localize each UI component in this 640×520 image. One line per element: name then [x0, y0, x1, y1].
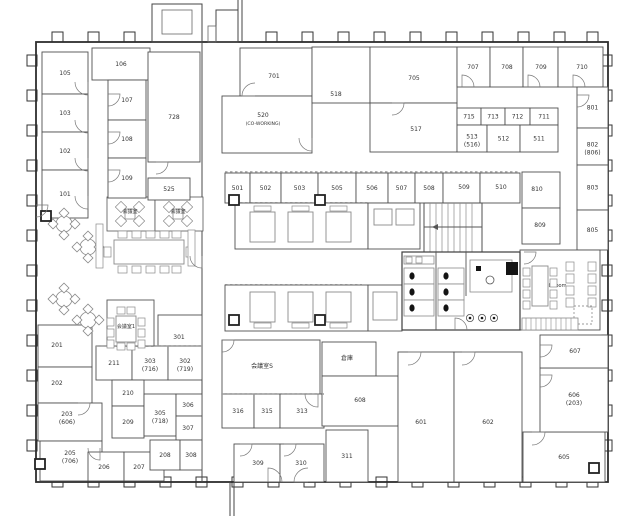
room-label-505: 505: [331, 185, 343, 192]
pillar: [229, 315, 239, 325]
room-506: 506: [356, 173, 388, 203]
room-503: 503: [281, 173, 318, 203]
floor-plan-drawing: 105103102101106107108109728525701520(CO-…: [0, 0, 640, 520]
room-label-517: 517: [410, 126, 422, 133]
room-sublabel-802: (806): [584, 150, 600, 157]
room-label-607: 607: [569, 348, 581, 355]
room-label-520: 520: [257, 112, 269, 119]
room-label-313: 313: [296, 408, 308, 415]
room-label-510: 510: [495, 184, 507, 191]
room-label-502: 502: [260, 185, 272, 192]
room-label-805: 805: [587, 227, 599, 234]
room-会議室S: 会議室S: [222, 340, 320, 394]
room-202: 202: [38, 367, 92, 403]
room-712: 712: [505, 108, 530, 125]
room-label-倉庫: 倉庫: [341, 354, 353, 362]
room-label-512: 512: [498, 136, 510, 143]
room-520: 520(CO-WORKING): [222, 96, 312, 153]
room-108: 108: [108, 120, 146, 158]
room-label-711: 711: [538, 114, 550, 121]
room-303: 303(716): [132, 346, 168, 380]
room-309: 309: [234, 444, 280, 482]
room-206: 206: [88, 452, 124, 481]
room-label-713: 713: [487, 114, 499, 121]
room-507: 507: [388, 173, 415, 203]
room-301: 301: [158, 315, 202, 346]
room-label-201: 201: [51, 342, 63, 349]
room-701: 701: [240, 48, 312, 96]
room-label-705: 705: [408, 75, 420, 82]
room-801: 801: [577, 87, 608, 128]
room-label-103: 103: [59, 110, 71, 117]
room-label-211: 211: [108, 360, 120, 367]
room-label-309: 309: [252, 460, 264, 467]
room-708: 708: [490, 47, 523, 87]
room-502: 502: [250, 173, 281, 203]
room-sublabel-513: (516): [464, 142, 480, 149]
room-label-203: 203: [61, 411, 73, 418]
room-倉庫: 倉庫: [322, 342, 376, 376]
room-label-311: 311: [341, 453, 353, 460]
room-label-108: 108: [121, 136, 133, 143]
room-label-809: 809: [534, 222, 546, 229]
room-sublabel-302: (719): [177, 366, 193, 373]
room-517: 517: [370, 103, 457, 152]
room-label-301: 301: [173, 334, 185, 341]
pillar: [589, 463, 599, 473]
room-label-307: 307: [182, 425, 194, 432]
room-sublabel-205: (706): [62, 458, 78, 465]
room-705: 705: [370, 47, 457, 103]
room-211: 211: [96, 346, 132, 380]
room-602: 602: [454, 352, 522, 482]
room-label-105: 105: [59, 70, 71, 77]
room-label-701: 701: [268, 73, 280, 80]
room-label-508: 508: [423, 185, 435, 192]
room-label-708: 708: [501, 64, 513, 71]
room-sublabel-520: (CO-WORKING): [246, 121, 281, 127]
room-label-310: 310: [295, 460, 307, 467]
room-513: 513(516): [457, 125, 487, 152]
room-label-303: 303: [144, 358, 156, 365]
room-label-715: 715: [463, 114, 475, 121]
room-label-208: 208: [159, 452, 171, 459]
room-label-525: 525: [163, 186, 175, 193]
room-311: 311: [326, 430, 368, 482]
room-label-315: 315: [261, 408, 273, 415]
room-512: 512: [487, 125, 520, 152]
room-label-709: 709: [535, 64, 547, 71]
room-518: 518: [312, 47, 370, 103]
room-label-601: 601: [415, 419, 427, 426]
room-label-210: 210: [122, 390, 134, 397]
room-103: 103: [42, 94, 88, 132]
room-label-305: 305: [154, 410, 166, 417]
room-label-205: 205: [64, 450, 76, 457]
room-203: 203(606): [38, 403, 102, 441]
room-label-810: 810: [531, 186, 543, 193]
room-sublabel-303: (716): [142, 366, 158, 373]
room-label-513: 513: [466, 134, 478, 141]
room-label-302: 302: [179, 358, 191, 365]
room-315: 315: [254, 394, 280, 428]
room-label-109: 109: [121, 175, 133, 182]
room-713: 713: [481, 108, 505, 125]
pillar: [229, 195, 239, 205]
room-label-209: 209: [122, 419, 134, 426]
room-106: 106: [92, 48, 150, 80]
room-label-712: 712: [512, 114, 524, 121]
room-label-802: 802: [587, 142, 599, 149]
room-711: 711: [530, 108, 558, 125]
room-label-506: 506: [366, 185, 378, 192]
room-label-801: 801: [587, 105, 599, 112]
floor-plan-page: 105103102101106107108109728525701520(CO-…: [0, 0, 640, 520]
room-728: 728: [148, 52, 200, 162]
room-605: 605: [523, 432, 605, 482]
room-label-106: 106: [115, 61, 127, 68]
room-label-606: 606: [568, 392, 580, 399]
room-805: 805: [577, 210, 608, 250]
room-label-511: 511: [533, 136, 545, 143]
area-label: 会議室: [122, 208, 137, 215]
room-label-102: 102: [59, 148, 71, 155]
room-label-501: 501: [232, 185, 244, 192]
room-310: 310: [280, 444, 324, 482]
pillar: [35, 459, 45, 469]
room-label-710: 710: [576, 64, 588, 71]
room-label-101: 101: [59, 191, 71, 198]
room-label-202: 202: [51, 380, 63, 387]
restroom-fixtures: [402, 252, 520, 330]
area-label: 会議室: [170, 208, 185, 215]
room-102: 102: [42, 132, 88, 170]
room-802: 802(806): [577, 128, 608, 165]
room-305: 305(718): [144, 394, 176, 436]
room-sublabel-305: (718): [152, 418, 168, 425]
room-316: 316: [222, 394, 254, 428]
room-107: 107: [108, 80, 146, 120]
room-510: 510: [480, 173, 520, 203]
room-307: 307: [176, 416, 202, 440]
room-label-509: 509: [458, 184, 470, 191]
room-608: 608: [322, 376, 398, 426]
room-label-207: 207: [133, 464, 145, 471]
room-label-306: 306: [182, 402, 194, 409]
room-label-728: 728: [168, 114, 180, 121]
room-105: 105: [42, 52, 88, 94]
room-803: 803: [577, 165, 608, 210]
room-label-608: 608: [354, 397, 366, 404]
room-302: 302(719): [168, 346, 202, 380]
room-109: 109: [108, 158, 146, 198]
room-label-206: 206: [98, 464, 110, 471]
stairs-icon: [424, 203, 482, 252]
room-601: 601: [398, 352, 454, 482]
room-509: 509: [443, 173, 480, 203]
room-210: 210: [112, 380, 144, 406]
room-208: 208: [150, 440, 180, 470]
room-525: 525: [148, 178, 190, 200]
room-715: 715: [457, 108, 481, 125]
room-511: 511: [520, 125, 558, 152]
room-label-308: 308: [185, 452, 197, 459]
room-308: 308: [180, 440, 202, 470]
room-label-518: 518: [330, 91, 342, 98]
room-label-会議室S: 会議室S: [251, 362, 273, 370]
room-809: 809: [522, 208, 560, 244]
room-710: 710: [558, 47, 603, 87]
room-label-316: 316: [232, 408, 244, 415]
room-209: 209: [112, 406, 144, 438]
room-label-107: 107: [121, 97, 133, 104]
room-label-803: 803: [587, 185, 599, 192]
room-313: 313: [280, 394, 324, 428]
room-sublabel-606: (203): [566, 400, 582, 407]
room-label-605: 605: [558, 454, 570, 461]
pillar: [315, 315, 325, 325]
room-606: 606(203): [540, 368, 608, 432]
room-label-707: 707: [467, 64, 479, 71]
room-label-507: 507: [396, 185, 408, 192]
room-508: 508: [415, 173, 443, 203]
pillar: [41, 211, 51, 221]
room-label-503: 503: [294, 185, 306, 192]
room-306: 306: [176, 394, 202, 416]
room-810: 810: [522, 172, 560, 208]
area-label: 会議室1: [117, 323, 135, 330]
room-label-602: 602: [482, 419, 494, 426]
room-sublabel-203: (606): [59, 419, 75, 426]
pillar: [315, 195, 325, 205]
